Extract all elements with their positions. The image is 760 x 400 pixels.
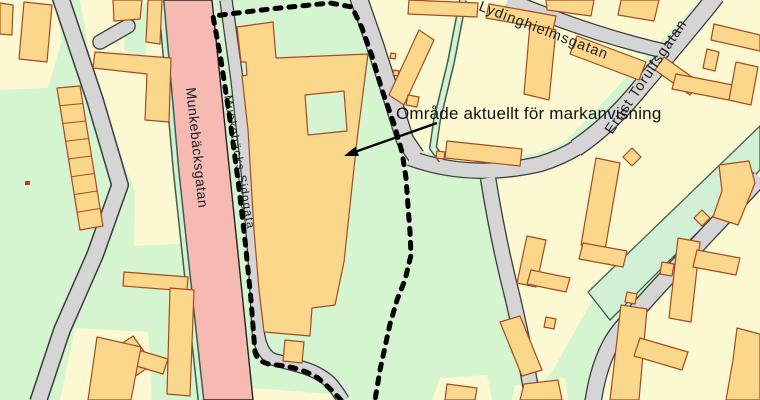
annotation-label: Område aktuellt för markanvisning <box>396 104 662 123</box>
tiny-map-mark <box>25 181 30 185</box>
map-screenshot: Munkebäcksgatan Munkebäcks Sidogata Lydi… <box>0 0 760 400</box>
map-canvas: Munkebäcksgatan Munkebäcks Sidogata Lydi… <box>0 0 760 400</box>
